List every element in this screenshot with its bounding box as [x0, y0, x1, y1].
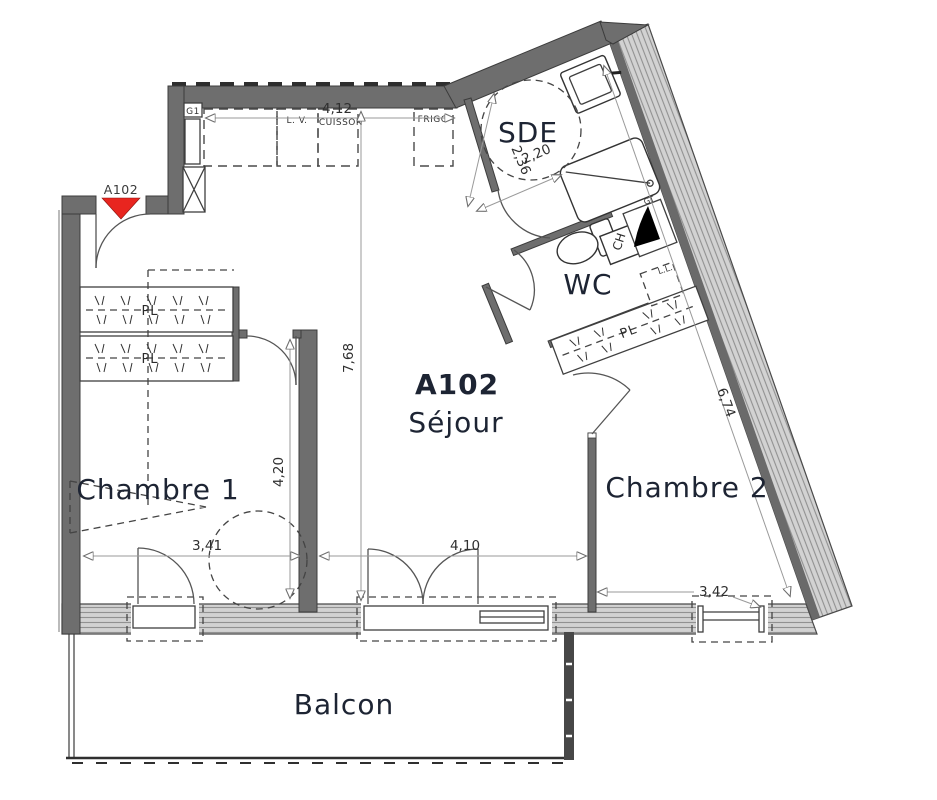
wc-label: WC	[563, 268, 612, 301]
balcony-wall-right	[564, 632, 574, 760]
floor-plan-page: L. V. CUISSON FRIGO G1 PL PL PL	[0, 0, 937, 800]
closet2-label: PL	[141, 352, 158, 367]
duct-shaft	[185, 119, 200, 164]
dim-412: 4,12	[322, 101, 352, 117]
sejour-door-right-swing	[423, 549, 478, 604]
wall-sejour-chambre1	[299, 330, 317, 612]
wall-sejour-chambre2	[588, 433, 596, 612]
chambre2-label: Chambre 2	[605, 471, 768, 504]
kitchen-area: L. V. CUISSON FRIGO G1	[183, 103, 453, 212]
washbasin-outer	[560, 55, 621, 114]
chambre1-label: Chambre 1	[76, 473, 239, 506]
sde-door-swing	[498, 190, 550, 238]
chambre1-door-swing	[247, 336, 296, 385]
left-wall	[62, 196, 80, 634]
sejour-label: Séjour	[408, 406, 503, 439]
washer-label: L.L.	[657, 263, 674, 277]
dim-768: 7,68	[341, 343, 357, 373]
dim-420: 4,20	[271, 457, 287, 487]
sde-label: SDE	[498, 116, 558, 149]
kitchen-column-wall	[168, 86, 184, 214]
entrance-marker: A102	[102, 182, 140, 219]
dim-410: 4,10	[450, 538, 480, 554]
top-wall	[168, 86, 457, 108]
chambre1-turning-circle	[209, 511, 307, 609]
chambre2-window-jamb-left	[698, 606, 703, 632]
dim-341: 3,41	[192, 538, 222, 554]
dim-342: 3,42	[699, 584, 729, 600]
chambre1-closets: PL PL	[80, 287, 233, 381]
entrance-door-swing	[96, 214, 150, 268]
floor-plan-drawing: L. V. CUISSON FRIGO G1 PL PL PL	[0, 0, 937, 800]
cooktop-label: CUISSON	[319, 118, 363, 128]
balcon-label: Balcon	[294, 688, 394, 721]
sejour-door-left-swing	[368, 549, 423, 604]
chambre2-window-jamb-right	[759, 606, 764, 632]
sejour-code-label: A102	[415, 368, 499, 401]
g1-label: G1	[186, 107, 200, 117]
chambre1-door-jamb-right	[293, 330, 301, 338]
fridge-label: FRIGO	[418, 115, 449, 125]
entrance-unit-label: A102	[104, 182, 138, 197]
wall-sde-left	[464, 98, 499, 192]
chambre2-door-swing	[573, 373, 630, 390]
chambre2-door-leaf	[592, 390, 630, 434]
entry-wall-left	[62, 196, 96, 214]
wc-door-swing	[514, 250, 534, 310]
closet1-label: PL	[141, 304, 158, 319]
